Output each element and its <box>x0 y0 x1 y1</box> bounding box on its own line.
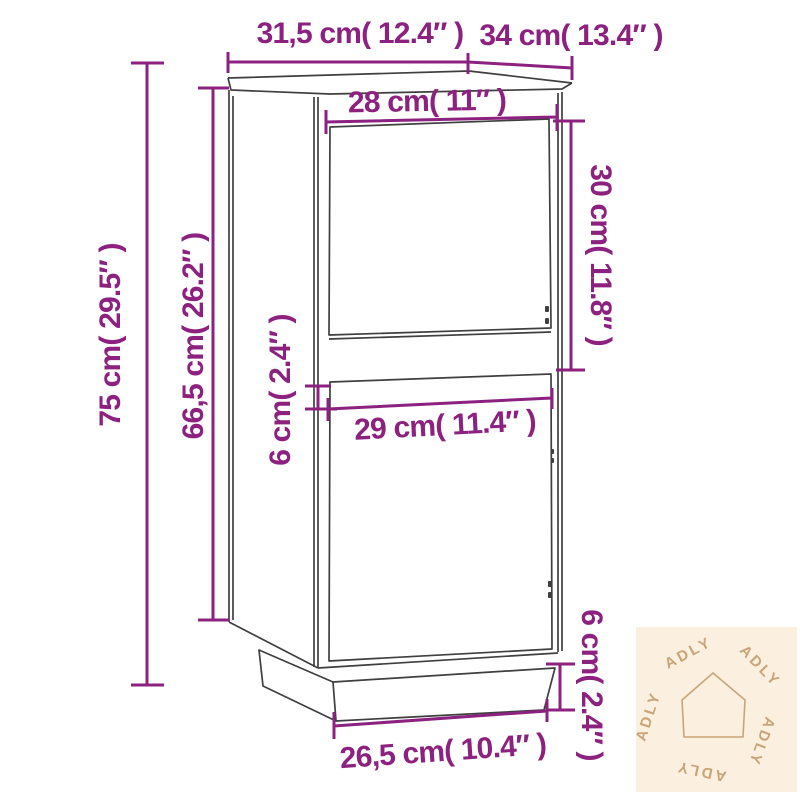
dim-line-top-width <box>228 52 468 74</box>
cabinet-left-bottom-edge <box>229 622 318 668</box>
dim-label-upper-door-width: 28 cm( 11″ ) <box>348 86 507 119</box>
dim-label-upper-door-height: 30 cm( 11.8″ ) <box>585 164 615 346</box>
plinth-side <box>259 650 336 721</box>
upper-door-bottom-line <box>329 332 551 339</box>
dim-line-total-height <box>131 63 164 685</box>
upper-door-handle <box>545 306 549 312</box>
brand-watermark: ADLY ADLY ADLY ADLY ADLY <box>633 627 797 792</box>
dim-label-total-height: 75 cm( 29.5″ ) <box>96 243 126 426</box>
lower-door-handle <box>548 581 552 587</box>
door-hinge-mark <box>551 449 554 454</box>
upper-door-panel <box>329 119 551 335</box>
dim-label-top-depth: 34 cm( 13.4″ ) <box>479 21 662 51</box>
door-handles <box>545 306 554 598</box>
door-hinge-mark <box>551 458 554 463</box>
upper-door-handle <box>545 318 549 324</box>
dim-label-door-gap: 6 cm( 2.4″ ) <box>266 314 296 466</box>
cabinet-top-edge <box>228 71 572 83</box>
dimension-diagram-canvas: ADLY ADLY ADLY ADLY ADLY <box>0 0 800 800</box>
dim-label-body-height: 66,5 cm( 26.2″ ) <box>179 233 209 440</box>
dim-label-plinth-height: 6 cm( 2.4″ ) <box>576 609 606 761</box>
dim-line-door-gap <box>305 386 337 409</box>
dim-label-top-width: 31,5 cm( 12.4″ ) <box>257 19 464 49</box>
lower-door-handle <box>548 592 552 598</box>
